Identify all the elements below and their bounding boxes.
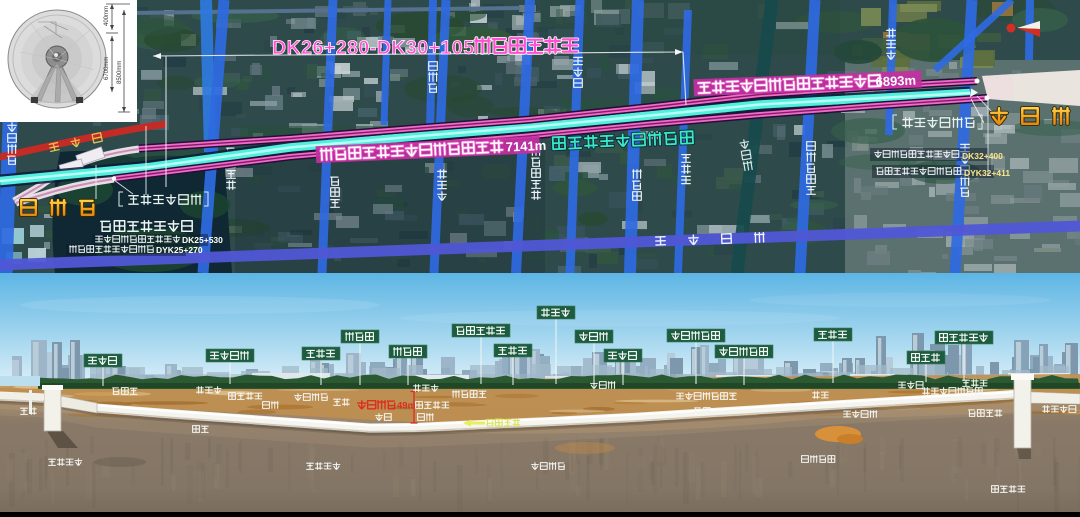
svg-text:7141m: 7141m — [505, 138, 546, 155]
svg-text:DK26+280-DK30+105: DK26+280-DK30+105 — [272, 37, 475, 59]
svg-text:49m: 49m — [397, 401, 416, 412]
svg-text:6893m: 6893m — [875, 73, 916, 90]
svg-text:DYK32+411: DYK32+411 — [964, 168, 1010, 178]
svg-text:8500mm: 8500mm — [117, 61, 123, 84]
svg-text:DK25+530: DK25+530 — [182, 235, 223, 245]
svg-text:DYK25+270: DYK25+270 — [156, 245, 203, 255]
svg-text:6700mm: 6700mm — [104, 57, 110, 80]
svg-text:DK32+400: DK32+400 — [962, 151, 1003, 161]
svg-text:400mm: 400mm — [104, 6, 110, 26]
